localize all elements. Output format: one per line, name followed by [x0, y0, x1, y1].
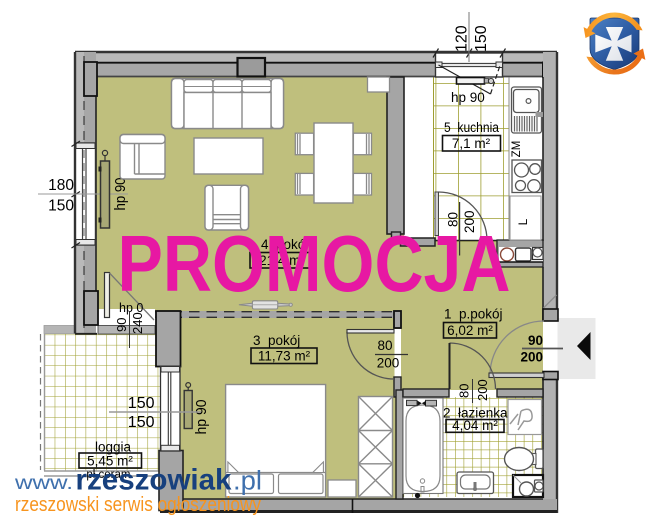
- svg-text:120: 120: [454, 25, 471, 52]
- svg-text:6,02 m²: 6,02 m²: [447, 323, 493, 338]
- svg-text:150: 150: [128, 414, 155, 431]
- svg-text:200: 200: [520, 350, 543, 365]
- svg-text:4,04 m²: 4,04 m²: [452, 418, 498, 433]
- svg-text:5 kuchnia: 5 kuchnia: [444, 120, 499, 135]
- svg-text:hp 90: hp 90: [193, 400, 210, 435]
- svg-text:3 pokój: 3 pokój: [253, 333, 300, 348]
- svg-text:7,1 m²: 7,1 m²: [452, 136, 491, 151]
- svg-text:80: 80: [457, 384, 472, 398]
- svg-text:180: 180: [48, 177, 74, 194]
- svg-text:www.: www.: [14, 472, 73, 494]
- svg-text:80: 80: [377, 338, 392, 353]
- svg-text:200: 200: [475, 379, 490, 401]
- svg-text:hp 90: hp 90: [451, 90, 485, 105]
- svg-text:150: 150: [473, 25, 490, 52]
- svg-text:.pl: .pl: [233, 466, 262, 496]
- svg-text:11,73 m²: 11,73 m²: [258, 349, 311, 364]
- svg-text:1 p.pokój: 1 p.pokój: [444, 307, 503, 322]
- svg-text:200: 200: [377, 356, 400, 371]
- svg-text:PROMOCJA: PROMOCJA: [118, 219, 511, 308]
- svg-text:90: 90: [528, 333, 543, 348]
- svg-text:ZM: ZM: [511, 141, 523, 158]
- svg-text:150: 150: [48, 198, 74, 215]
- svg-text:150: 150: [128, 395, 155, 412]
- svg-text:L: L: [516, 218, 530, 225]
- svg-text:rzeszowski serwis ogłoszeniowy: rzeszowski serwis ogłoszeniowy: [15, 493, 262, 516]
- svg-text:rzeszowiak: rzeszowiak: [76, 464, 232, 497]
- svg-text:240: 240: [130, 312, 145, 334]
- svg-text:90: 90: [114, 318, 129, 332]
- svg-text:hp 90: hp 90: [112, 178, 129, 211]
